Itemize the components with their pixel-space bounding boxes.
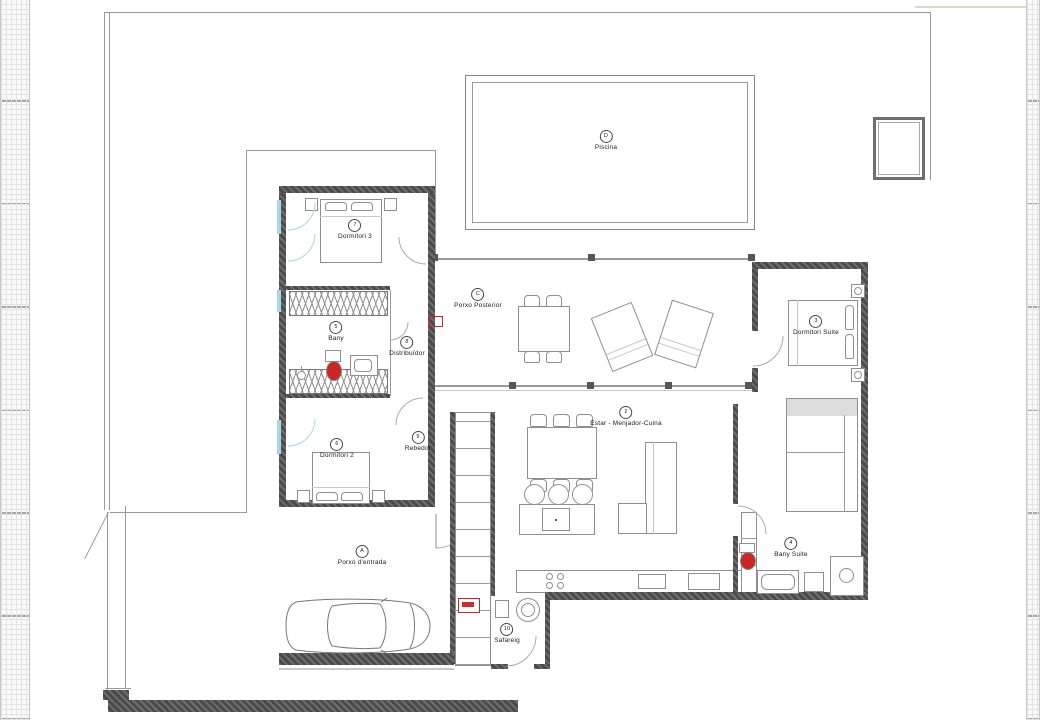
nightstand [297,490,310,503]
site-hatch-left [0,0,30,720]
room-name: Distribuïdor [389,350,425,357]
room-code-badge: D [599,130,612,143]
room-code-badge: 3 [809,315,822,328]
room-code-badge: 10 [501,623,514,636]
lamp [854,371,862,379]
room-name: Piscina [595,144,617,151]
dining-table [527,427,597,479]
dining-chair [553,414,570,427]
porch-chair [546,295,562,307]
pool-shed-inner [878,122,920,175]
window-swing-arc [288,419,315,446]
boundary-line [104,12,105,510]
pillow [325,202,347,211]
wall-segment [534,664,550,669]
room-code-badge: 6 [330,438,343,451]
toilet-icon [326,361,342,381]
boundary-line [105,12,930,13]
pool-outline [465,75,755,230]
closet-shelf-band [787,399,857,416]
wall-segment [279,193,286,507]
blanket-line [320,216,382,217]
door-arc [399,237,426,264]
porch-roof-line [435,258,755,260]
door-arc [753,336,783,366]
porch-table [518,306,570,352]
room-label-bany: 5 Bany [328,321,344,343]
nightstand [372,490,385,503]
wall-segment [545,592,868,600]
hob-dot [555,519,557,521]
kerb-line [279,668,454,670]
floor-plan-canvas: D Piscina 7 Dormitori 3 C Porxo Posterio… [0,0,1040,720]
room-label-porxo-entrada: A Porxo d'entrada [338,545,387,567]
shower-arm [301,366,302,372]
wall-segment [545,596,550,668]
room-code-badge: 7 [348,219,361,232]
glass-facade-line [435,385,753,387]
sink-basin [354,359,372,372]
gate-pillar [103,690,129,700]
room-name: Dormitori 3 [338,233,372,240]
window-swing-arc [288,203,315,230]
driveway-line [125,506,126,688]
porch-chair [524,295,540,307]
lounge-chair [591,302,654,372]
room-name: Porxo d'entrada [338,559,387,566]
porch-chair [546,351,562,363]
sofa-line [653,442,654,534]
wall-segment [733,404,738,504]
gate-line [105,688,131,689]
terrace-edge [246,150,436,151]
terrace-edge [246,150,247,513]
wardrobe [289,291,388,316]
room-label-porxo-posterior: C Porxo Posterior [454,288,502,310]
room-label-dormitori-2: 6 Dormitori 2 [320,438,354,460]
facade-post [665,382,672,389]
room-label-rebedor: 9 Rebedor [405,431,431,453]
gate-leaf-line [84,512,108,559]
room-label-estar-menjador-cuina: 2 Estar - Menjador-Cuina [590,406,662,428]
door-arc [738,506,766,534]
pool-shed [873,117,925,180]
terrace-edge [110,512,247,513]
facade-post [587,382,594,389]
room-name: Bany Suite [774,551,807,558]
hob-burner [546,573,553,580]
boundary-line [109,12,110,510]
washer-drum [521,603,535,617]
room-code-badge: 8 [400,336,413,349]
wall-segment [286,286,390,290]
facade-post [745,382,752,389]
shower-icon [297,371,306,380]
cabinet-column [455,412,491,666]
room-label-distribuidor: 8 Distribuïdor [389,336,425,358]
stool [524,484,545,505]
wall-segment [428,193,435,500]
blanket-line [312,487,370,488]
room-label-dormitori-suite: 3 Dormitori Suite [793,315,839,337]
site-wall [108,700,518,712]
boundary-line [107,512,108,690]
room-code-badge: A [356,545,369,558]
wall-segment [752,368,758,392]
room-code-badge: 2 [620,406,633,419]
section-marker [429,316,443,327]
room-name: Dormitori Suite [793,329,839,336]
hedge-line [915,6,1026,8]
dining-chair [530,414,547,427]
window-marker [277,420,281,454]
pillow [341,492,363,501]
facade-post [509,382,516,389]
hob-burner [557,573,564,580]
pillow [845,334,854,359]
terrace-edge [435,150,436,260]
pillow [351,202,373,211]
room-name: Estar - Menjador-Cuina [590,420,662,427]
hob-burner [557,582,564,589]
stool [572,484,593,505]
room-code-badge: 9 [412,431,425,444]
room-name: Porxo Posterior [454,302,502,309]
room-label-dormitori-3: 7 Dormitori 3 [338,219,372,241]
closet-line [844,415,845,512]
sofa-chaise [618,503,647,534]
sofa [645,442,677,534]
room-label-piscina: D Piscina [595,130,617,152]
window-swing-arc [288,234,315,261]
wall-segment [279,186,435,193]
room-name: Bany [328,335,344,342]
room-name: Safareig [494,637,520,644]
electrical-panel [458,598,480,613]
room-code-badge: 5 [330,321,343,334]
room-code-badge: 4 [785,537,798,550]
pillow [316,492,338,501]
lounge-chair [654,300,714,369]
window-marker [277,290,281,312]
wall-segment [286,394,390,398]
pillow [845,305,854,330]
laundry-sink [495,600,509,618]
panel-mark [462,602,474,607]
lamp [854,287,862,295]
glass-facade-line [435,390,753,391]
room-name: Dormitori 2 [320,452,354,459]
toilet-icon [740,552,756,570]
wall-segment [861,269,868,600]
door-arc [396,398,423,425]
shower-icon [839,568,854,583]
wall-segment [752,269,758,331]
room-code-badge: C [471,288,484,301]
porch-post [748,254,755,261]
hob-burner [546,582,553,589]
walkin-closet [786,398,858,512]
car-icon [284,596,432,656]
bathtub-inner [761,574,795,590]
stool [548,484,569,505]
appliance [688,573,720,590]
porch-chair [524,351,540,363]
wall-segment [491,412,495,596]
pool-inner-edge [472,82,748,223]
nightstand [384,198,397,211]
kitchen-sink [638,574,666,589]
room-label-safareig: 10 Safareig [494,623,520,645]
site-hatch-right [1026,0,1040,720]
room-label-bany-suite: 4 Bany Suite [774,537,807,559]
boundary-line [930,12,931,180]
closet-line [786,452,844,453]
wall-segment [752,262,868,269]
porch-post [588,254,595,261]
window-marker [277,200,281,234]
bidet [804,572,824,592]
wall-segment [733,536,738,596]
room-name: Rebedor [405,445,431,452]
